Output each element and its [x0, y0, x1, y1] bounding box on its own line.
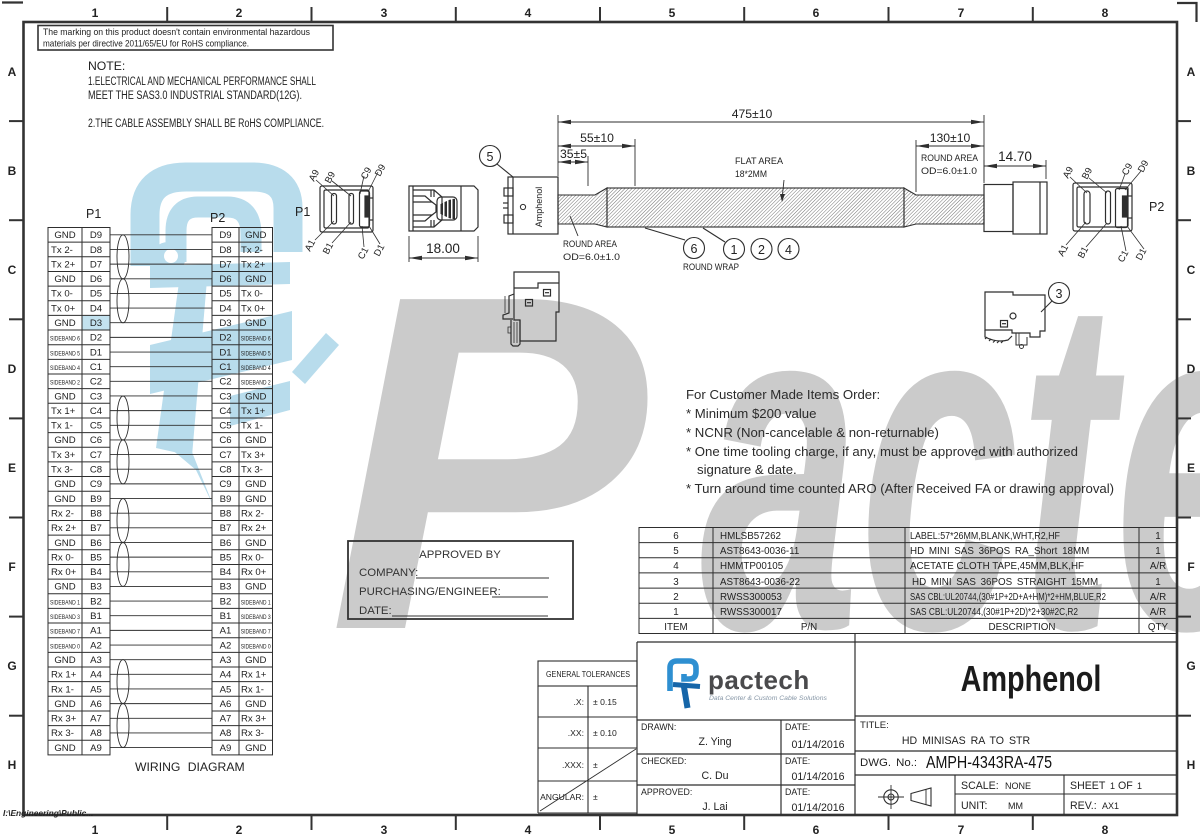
svg-text:GND: GND	[245, 318, 266, 329]
svg-text:B3: B3	[90, 582, 102, 593]
svg-text:GND: GND	[54, 494, 75, 505]
svg-text:A/R: A/R	[1150, 561, 1166, 572]
svg-text:Tx 0+: Tx 0+	[241, 303, 266, 314]
svg-text:Tx 3+: Tx 3+	[241, 450, 266, 461]
svg-text:G: G	[1186, 659, 1195, 673]
svg-text:D7: D7	[219, 259, 231, 270]
svg-text:ROUND AREA: ROUND AREA	[921, 153, 979, 164]
svg-text:D9: D9	[373, 163, 388, 179]
svg-text:5: 5	[669, 823, 676, 837]
svg-text:RWSS300053: RWSS300053	[720, 592, 782, 603]
svg-text:1: 1	[1155, 546, 1160, 557]
svg-text:GND: GND	[245, 538, 266, 549]
svg-text:SIDEBAND 5: SIDEBAND 5	[241, 350, 271, 357]
svg-text:ROUND AREA: ROUND AREA	[563, 239, 618, 250]
svg-text:Rx 0+: Rx 0+	[51, 567, 77, 578]
svg-text:I:\Engineering\Public...: I:\Engineering\Public...	[3, 808, 93, 818]
svg-text:SIDEBAND 2: SIDEBAND 2	[241, 380, 271, 387]
svg-text:APPROVED:: APPROVED:	[641, 787, 692, 797]
svg-text:HD MINISAS RA TO STR: HD MINISAS RA TO STR	[902, 735, 1031, 747]
svg-text:* NCNR (Non-cancelable & non-r: * NCNR (Non-cancelable & non-returnable)	[686, 425, 939, 440]
svg-text:B6: B6	[220, 538, 232, 549]
svg-text:D: D	[1187, 362, 1196, 376]
svg-text:REV.:: REV.:	[1070, 800, 1097, 812]
svg-text:APPROVED BY: APPROVED BY	[419, 549, 501, 561]
svg-text:WIRING DIAGRAM: WIRING DIAGRAM	[135, 760, 245, 774]
svg-text:GND: GND	[54, 274, 75, 285]
svg-text:C8: C8	[90, 465, 102, 476]
svg-text:Tx 2+: Tx 2+	[51, 259, 76, 270]
svg-text:DESCRIPTION: DESCRIPTION	[989, 622, 1056, 633]
svg-text:Tx 3-: Tx 3-	[241, 465, 263, 476]
svg-text:C5: C5	[219, 421, 231, 432]
svg-text:GND: GND	[245, 743, 266, 754]
svg-text:3: 3	[1056, 287, 1063, 301]
svg-text:D5: D5	[90, 289, 102, 300]
svg-text:A/R: A/R	[1150, 607, 1166, 618]
svg-text:CHECKED:: CHECKED:	[641, 756, 686, 766]
svg-text:GND: GND	[245, 655, 266, 666]
svg-text:OD=6.0±1.0: OD=6.0±1.0	[563, 252, 620, 263]
svg-text:C: C	[1187, 263, 1196, 277]
svg-text:A7: A7	[90, 714, 102, 725]
svg-text:GND: GND	[54, 230, 75, 241]
svg-text:A2: A2	[90, 640, 102, 651]
svg-text:For Customer Made Items Order:: For Customer Made Items Order:	[686, 387, 880, 402]
svg-text:B1: B1	[90, 611, 102, 622]
svg-text:B2: B2	[90, 596, 102, 607]
svg-text:D6: D6	[90, 274, 102, 285]
svg-text:SIDEBAND 7: SIDEBAND 7	[241, 629, 271, 636]
svg-text:B4: B4	[220, 567, 232, 578]
svg-text:35±5: 35±5	[560, 147, 587, 161]
svg-text:SIDEBAND 1: SIDEBAND 1	[241, 599, 271, 606]
svg-text:D4: D4	[219, 303, 232, 314]
svg-text:PURCHASING/ENGINEER:: PURCHASING/ENGINEER:	[359, 586, 501, 598]
svg-text:D8: D8	[90, 245, 102, 256]
svg-text:E: E	[8, 461, 16, 475]
svg-text:GND: GND	[54, 582, 75, 593]
svg-text:A1: A1	[220, 626, 232, 637]
svg-text:1: 1	[92, 6, 99, 20]
svg-text:Rx 0-: Rx 0-	[51, 552, 74, 563]
svg-text:Rx 2-: Rx 2-	[241, 509, 264, 520]
svg-text:D7: D7	[90, 259, 102, 270]
svg-text:6: 6	[673, 531, 679, 542]
svg-text:1: 1	[1110, 781, 1115, 791]
svg-text:SIDEBAND 4: SIDEBAND 4	[50, 365, 80, 372]
svg-text:B5: B5	[220, 552, 232, 563]
svg-text:2: 2	[236, 823, 243, 837]
svg-text:B6: B6	[90, 538, 102, 549]
svg-text:RWSS300017: RWSS300017	[720, 607, 782, 618]
svg-text:A6: A6	[90, 699, 102, 710]
svg-text:MM: MM	[1008, 801, 1023, 811]
svg-text:A1: A1	[303, 238, 318, 253]
svg-text:C3: C3	[90, 391, 102, 402]
svg-text:LABEL:57*26MM,BLANK,WHT,R2,HF: LABEL:57*26MM,BLANK,WHT,R2,HF	[910, 531, 1060, 542]
svg-text:C6: C6	[219, 435, 231, 446]
svg-text:55±10: 55±10	[580, 131, 614, 145]
svg-text:AX1: AX1	[1102, 801, 1119, 811]
svg-text:P: P	[328, 196, 649, 730]
svg-text:A5: A5	[90, 684, 102, 695]
svg-text:Rx 2-: Rx 2-	[51, 509, 74, 520]
svg-text:C1: C1	[219, 362, 231, 373]
svg-text:C1: C1	[90, 362, 102, 373]
svg-text:A/R: A/R	[1150, 592, 1166, 603]
svg-text:D1: D1	[219, 347, 231, 358]
svg-text:C: C	[8, 263, 17, 277]
svg-text:B: B	[1187, 164, 1196, 178]
svg-text:COMPANY:: COMPANY:	[359, 567, 418, 579]
svg-text:OF: OF	[1118, 780, 1133, 792]
svg-text:OD=6.0±1.0: OD=6.0±1.0	[921, 166, 977, 177]
svg-text:B9: B9	[90, 494, 102, 505]
svg-text:GND: GND	[54, 435, 75, 446]
svg-text:2: 2	[236, 6, 243, 20]
svg-text:A9: A9	[1061, 165, 1076, 180]
svg-text:E: E	[1187, 461, 1195, 475]
svg-text:A9: A9	[90, 743, 102, 754]
svg-text:SIDEBAND 3: SIDEBAND 3	[50, 614, 80, 621]
svg-text:D4: D4	[90, 303, 103, 314]
svg-text:P/N: P/N	[801, 622, 817, 633]
svg-text:SIDEBAND 6: SIDEBAND 6	[241, 336, 271, 343]
svg-text:DATE:: DATE:	[785, 756, 810, 766]
svg-text:D6: D6	[219, 274, 231, 285]
svg-text:Rx 2+: Rx 2+	[241, 523, 267, 534]
svg-text:C9: C9	[90, 479, 102, 490]
svg-text:SHEET: SHEET	[1070, 780, 1106, 792]
svg-text:B5: B5	[90, 552, 102, 563]
svg-text:SIDEBAND 0: SIDEBAND 0	[50, 643, 80, 650]
svg-text:GND: GND	[245, 479, 266, 490]
svg-text:UNIT:: UNIT:	[961, 800, 987, 812]
svg-text:Tx 0+: Tx 0+	[51, 303, 76, 314]
svg-text:Tx 1-: Tx 1-	[51, 421, 73, 432]
svg-text:D2: D2	[90, 333, 102, 344]
svg-text:130±10: 130±10	[930, 131, 971, 145]
svg-text:C6: C6	[90, 435, 102, 446]
svg-text:NONE: NONE	[1005, 781, 1031, 791]
svg-text:± 0.10: ± 0.10	[593, 728, 617, 738]
svg-text:Tx 1+: Tx 1+	[241, 406, 266, 417]
svg-text:SIDEBAND 7: SIDEBAND 7	[50, 629, 80, 636]
svg-text:DATE:: DATE:	[359, 605, 392, 617]
svg-text:HD MINI SAS 36POS RA_Short 18M: HD MINI SAS 36POS RA_Short 18MM	[910, 546, 1089, 557]
svg-text:FLAT AREA: FLAT AREA	[735, 156, 784, 167]
svg-text:D: D	[8, 362, 17, 376]
svg-text:Data Center & Custom Cable Sol: Data Center & Custom Cable Solutions	[709, 695, 827, 702]
svg-text:* One time tooling charge, if: * One time tooling charge, if any, must …	[686, 444, 1078, 459]
svg-text:Tx 3+: Tx 3+	[51, 450, 76, 461]
svg-text:SIDEBAND 2: SIDEBAND 2	[50, 380, 80, 387]
svg-text:J. Lai: J. Lai	[702, 801, 727, 813]
svg-text:A8: A8	[220, 728, 232, 739]
svg-text:C2: C2	[219, 377, 231, 388]
svg-text:GND: GND	[54, 318, 75, 329]
svg-text:AMPH-4343RA-475: AMPH-4343RA-475	[926, 754, 1052, 773]
svg-text:B9: B9	[323, 170, 338, 185]
svg-text:MEET THE SAS3.0 INDUSTRIAL STA: MEET THE SAS3.0 INDUSTRIAL STANDARD(12G)…	[88, 88, 302, 102]
svg-text:D5: D5	[219, 289, 231, 300]
svg-text:D3: D3	[90, 318, 102, 329]
svg-text:* Turn around time counted ARO: * Turn around time counted ARO (After Re…	[686, 481, 1114, 496]
svg-text:P1: P1	[86, 207, 101, 221]
svg-text:A9: A9	[307, 168, 322, 183]
svg-text:SIDEBAND 3: SIDEBAND 3	[241, 614, 271, 621]
svg-text:3: 3	[673, 577, 679, 588]
svg-text:DRAWN:: DRAWN:	[641, 722, 676, 732]
svg-text:materials per directive 2011/6: materials per directive 2011/65/EU for R…	[43, 39, 249, 49]
svg-text:01/14/2016: 01/14/2016	[791, 739, 844, 751]
svg-text:C5: C5	[90, 421, 102, 432]
svg-text:P2: P2	[210, 211, 225, 225]
svg-text:GND: GND	[54, 391, 75, 402]
svg-text:GND: GND	[54, 538, 75, 549]
svg-text:475±10: 475±10	[732, 107, 773, 121]
svg-text:Rx 0-: Rx 0-	[241, 552, 264, 563]
svg-text:D8: D8	[219, 245, 231, 256]
svg-text:A: A	[8, 65, 17, 79]
svg-text:18*2MM: 18*2MM	[735, 169, 767, 180]
svg-text:SIDEBAND 5: SIDEBAND 5	[50, 350, 80, 357]
svg-text:P2: P2	[1149, 200, 1164, 214]
svg-text:Tx 0-: Tx 0-	[241, 289, 263, 300]
svg-text:C4: C4	[219, 406, 232, 417]
svg-text:01/14/2016: 01/14/2016	[791, 802, 844, 814]
svg-text:C9: C9	[1120, 162, 1135, 178]
svg-text:Rx 3+: Rx 3+	[241, 714, 267, 725]
svg-text:A: A	[1187, 65, 1196, 79]
svg-text:Tx 1-: Tx 1-	[241, 421, 263, 432]
svg-text:HD MINI SAS 36POS STRAIGHT 15M: HD MINI SAS 36POS STRAIGHT 15MM	[912, 577, 1098, 588]
svg-text:14.70: 14.70	[998, 149, 1032, 164]
svg-text:DWG. No.:: DWG. No.:	[860, 757, 917, 769]
svg-text:GND: GND	[54, 479, 75, 490]
svg-text:Tx 1+: Tx 1+	[51, 406, 76, 417]
svg-text:pactech: pactech	[708, 665, 810, 695]
svg-text:SCALE:: SCALE:	[961, 780, 999, 792]
svg-text:B8: B8	[90, 509, 102, 520]
svg-text:A8: A8	[90, 728, 102, 739]
svg-text:Rx 1+: Rx 1+	[51, 670, 77, 681]
svg-text:7: 7	[958, 823, 965, 837]
svg-text:Tx 3-: Tx 3-	[51, 465, 73, 476]
svg-text:1: 1	[1155, 531, 1160, 542]
svg-text:6: 6	[813, 6, 820, 20]
svg-text:.XXX:: .XXX:	[562, 760, 584, 770]
svg-text:B: B	[8, 164, 17, 178]
svg-text:AST8643-0036-22: AST8643-0036-22	[720, 577, 800, 588]
svg-text:Rx 1-: Rx 1-	[51, 684, 74, 695]
svg-text:3: 3	[381, 823, 388, 837]
svg-text:ACETATE CLOTH TAPE,45MM,BLK,HF: ACETATE CLOTH TAPE,45MM,BLK,HF	[910, 561, 1084, 572]
svg-text:D9: D9	[1136, 159, 1151, 175]
svg-text:QTY: QTY	[1148, 622, 1169, 633]
svg-text:A4: A4	[220, 670, 232, 681]
svg-text:GND: GND	[54, 699, 75, 710]
svg-text:4: 4	[785, 243, 792, 257]
svg-text:01/14/2016: 01/14/2016	[791, 771, 844, 783]
svg-text:7: 7	[958, 6, 965, 20]
svg-text:B7: B7	[220, 523, 232, 534]
svg-text:8: 8	[1102, 6, 1109, 20]
svg-text:GND: GND	[245, 582, 266, 593]
svg-text:D9: D9	[219, 230, 231, 241]
svg-text:4: 4	[525, 823, 532, 837]
svg-text:GND: GND	[245, 494, 266, 505]
svg-text:HMMTP00105: HMMTP00105	[720, 561, 784, 572]
svg-text:F: F	[8, 560, 15, 574]
svg-text:Tx 0-: Tx 0-	[51, 289, 73, 300]
svg-text:ROUND WRAP: ROUND WRAP	[683, 262, 739, 273]
svg-text:Tx 2-: Tx 2-	[51, 245, 73, 256]
svg-text:B2: B2	[220, 596, 232, 607]
svg-text:B4: B4	[90, 567, 102, 578]
svg-text:A9: A9	[220, 743, 232, 754]
svg-text:SIDEBAND 6: SIDEBAND 6	[50, 336, 80, 343]
svg-text:1: 1	[1137, 781, 1142, 791]
svg-text:1: 1	[673, 607, 678, 618]
svg-text:SAS CBL:UL20744,(30#1P+2D+A+HM: SAS CBL:UL20744,(30#1P+2D+A+HM)*2+HM,BLU…	[910, 592, 1106, 603]
svg-text:D9: D9	[90, 230, 102, 241]
svg-text:GND: GND	[54, 655, 75, 666]
svg-text:D2: D2	[219, 333, 231, 344]
svg-text:A3: A3	[220, 655, 232, 666]
svg-text:NOTE:: NOTE:	[88, 59, 125, 73]
svg-text:Rx 1-: Rx 1-	[241, 684, 264, 695]
svg-text:AST8643-0036-11: AST8643-0036-11	[720, 546, 799, 557]
svg-text:C2: C2	[90, 377, 102, 388]
svg-text:TITLE:: TITLE:	[860, 720, 889, 731]
svg-text:Rx 3-: Rx 3-	[241, 728, 264, 739]
svg-text:1.ELECTRICAL AND MECHANICAL PE: 1.ELECTRICAL AND MECHANICAL PERFORMANCE …	[88, 74, 316, 88]
svg-text:Amphenol: Amphenol	[534, 187, 544, 228]
svg-text:GND: GND	[245, 230, 266, 241]
svg-text:B9: B9	[220, 494, 232, 505]
svg-text:A5: A5	[220, 684, 232, 695]
svg-text:ANGULAR:: ANGULAR:	[540, 792, 584, 802]
svg-text:F: F	[1187, 560, 1194, 574]
svg-text:C8: C8	[219, 465, 231, 476]
svg-text:C. Du: C. Du	[701, 770, 728, 782]
svg-text:±: ±	[593, 760, 598, 770]
svg-text:HMLSB57262: HMLSB57262	[720, 531, 781, 542]
svg-text:2: 2	[758, 243, 765, 257]
svg-text:± 0.15: ± 0.15	[593, 697, 617, 707]
svg-text:Rx 2+: Rx 2+	[51, 523, 77, 534]
svg-text:GND: GND	[245, 274, 266, 285]
svg-text:H: H	[1187, 758, 1196, 772]
svg-text:A4: A4	[90, 670, 102, 681]
svg-text:C7: C7	[219, 450, 231, 461]
svg-text:4: 4	[673, 561, 679, 572]
svg-text:signature & date.: signature & date.	[697, 462, 797, 477]
svg-text:5: 5	[487, 150, 494, 164]
svg-text:Amphenol: Amphenol	[961, 658, 1102, 699]
svg-text:±: ±	[593, 792, 598, 802]
svg-text:.X:: .X:	[573, 697, 584, 707]
svg-text:SIDEBAND 1: SIDEBAND 1	[50, 599, 80, 606]
svg-text:3: 3	[381, 6, 388, 20]
svg-text:B9: B9	[1080, 166, 1095, 181]
svg-text:GND: GND	[54, 743, 75, 754]
svg-text:The marking on this product do: The marking on this product doesn't cont…	[43, 27, 310, 37]
svg-text:5: 5	[673, 546, 679, 557]
svg-text:Rx 0+: Rx 0+	[241, 567, 267, 578]
svg-text:1: 1	[731, 243, 738, 257]
svg-text:SIDEBAND 4: SIDEBAND 4	[241, 365, 271, 372]
svg-text:A2: A2	[220, 640, 232, 651]
svg-text:Tx 2+: Tx 2+	[241, 259, 266, 270]
svg-text:1: 1	[1155, 577, 1160, 588]
svg-text:B7: B7	[90, 523, 102, 534]
svg-text:SAS CBL:UL20744,(30#1P+2D)*2+3: SAS CBL:UL20744,(30#1P+2D)*2+30#2C,R2	[910, 607, 1078, 618]
svg-text:H: H	[8, 758, 17, 772]
svg-text:Z. Ying: Z. Ying	[699, 736, 732, 748]
svg-text:8: 8	[1102, 823, 1109, 837]
svg-text:4: 4	[525, 6, 532, 20]
svg-text:Tx 2-: Tx 2-	[241, 245, 263, 256]
svg-text:G: G	[7, 659, 16, 673]
svg-text:6: 6	[813, 823, 820, 837]
svg-text:D3: D3	[219, 318, 231, 329]
svg-text:2: 2	[673, 592, 678, 603]
svg-text:* Minimum $200 value: * Minimum $200 value	[686, 406, 816, 421]
svg-text:GND: GND	[245, 435, 266, 446]
svg-text:DATE:: DATE:	[785, 787, 810, 797]
svg-text:Rx 3-: Rx 3-	[51, 728, 74, 739]
svg-text:A1: A1	[90, 626, 102, 637]
svg-text:A6: A6	[220, 699, 232, 710]
svg-text:A3: A3	[90, 655, 102, 666]
svg-text:2.THE CABLE ASSEMBLY SHALL BE: 2.THE CABLE ASSEMBLY SHALL BE RoHS COMPL…	[88, 116, 324, 130]
svg-text:GENERAL TOLERANCES: GENERAL TOLERANCES	[546, 669, 630, 679]
svg-text:DATE:: DATE:	[785, 722, 810, 732]
svg-text:5: 5	[669, 6, 676, 20]
svg-text:B1: B1	[220, 611, 232, 622]
svg-text:SIDEBAND 0: SIDEBAND 0	[241, 643, 271, 650]
svg-text:D1: D1	[90, 347, 102, 358]
svg-text:GND: GND	[245, 699, 266, 710]
svg-text:A7: A7	[220, 714, 232, 725]
svg-text:B8: B8	[220, 509, 232, 520]
svg-text:C7: C7	[90, 450, 102, 461]
svg-text:C3: C3	[219, 391, 231, 402]
svg-text:6: 6	[691, 242, 698, 256]
svg-text:Rx 1+: Rx 1+	[241, 670, 267, 681]
svg-text:B3: B3	[220, 582, 232, 593]
svg-text:P1: P1	[295, 205, 310, 219]
svg-text:C4: C4	[90, 406, 103, 417]
svg-text:1: 1	[92, 823, 99, 837]
svg-text:C9: C9	[219, 479, 231, 490]
svg-text:.XX:: .XX:	[568, 728, 584, 738]
svg-text:ITEM: ITEM	[664, 622, 687, 633]
svg-text:GND: GND	[245, 391, 266, 402]
svg-text:Rx 3+: Rx 3+	[51, 714, 77, 725]
svg-text:18.00: 18.00	[426, 241, 460, 256]
